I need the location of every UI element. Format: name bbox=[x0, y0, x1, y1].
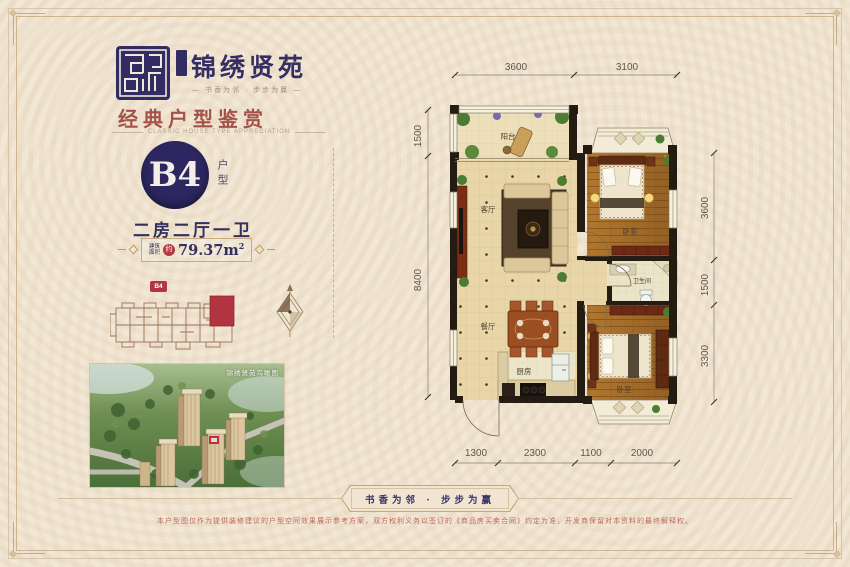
footer-disclaimer: 本户型图仅作为提供装修建议的户型空间效果展示参考方案，双方权利义务以签订的《商品… bbox=[0, 516, 850, 526]
footer-ribbon: 书香为邻 · 步步为赢 bbox=[341, 485, 519, 512]
dim-left-1: 1500 bbox=[413, 124, 424, 147]
floorplan-drawing: 阳台 客厅 卧室 卫生间 餐厅 厨房 卧室 3600 3100 1500 840… bbox=[402, 40, 774, 476]
room-label-bedroom2: 卧室 bbox=[617, 384, 632, 394]
area-value: 79.37m2 bbox=[178, 241, 244, 259]
unit-code: B4 bbox=[149, 155, 201, 195]
dim-top-2: 3100 bbox=[616, 62, 639, 73]
footer-slogan: 书香为邻 · 步步为赢 bbox=[365, 492, 495, 506]
corner-ornament bbox=[805, 13, 837, 45]
corner-ornament bbox=[13, 13, 45, 45]
area-box: 建筑面积 约 79.37m2 bbox=[141, 238, 252, 262]
room-label-kitchen: 厨房 bbox=[517, 366, 532, 376]
room-label-living: 客厅 bbox=[481, 204, 496, 214]
dining-set bbox=[508, 301, 558, 357]
section-title: 经典户型鉴赏 bbox=[118, 103, 268, 132]
dim-right-3: 3300 bbox=[700, 344, 711, 367]
room-label-bedroom1: 卧室 bbox=[623, 226, 638, 236]
brand-tagline: — 书香为邻 · 步步为赢 — bbox=[192, 85, 302, 95]
unit-badge: B4 bbox=[141, 141, 209, 209]
poster-canvas: 锦绣贤苑 — 书香为邻 · 步步为赢 — 经典户型鉴赏 CLASSIC HOUS… bbox=[0, 0, 850, 567]
section-subtitle: CLASSIC HOUSE TYPE APPRECIATION bbox=[148, 129, 290, 135]
aerial-view-image: 锦绣贤苑鸟瞰图 bbox=[89, 363, 285, 488]
brand-seal-icon bbox=[116, 46, 170, 100]
dim-bottom-3: 1100 bbox=[580, 448, 602, 459]
locator-unit-tag: B4 bbox=[150, 281, 167, 292]
footer-ribbon-inner: 书香为邻 · 步步为赢 bbox=[351, 488, 509, 509]
dim-bottom-4: 2000 bbox=[631, 448, 654, 459]
corner-ornament bbox=[805, 522, 837, 554]
compass-icon bbox=[269, 283, 311, 341]
building-locator-plan bbox=[110, 292, 262, 356]
subtitle-line-left bbox=[112, 132, 143, 133]
dim-top-1: 3600 bbox=[505, 62, 528, 73]
dim-right-1: 3600 bbox=[700, 196, 711, 219]
brand-name: 锦绣贤苑 bbox=[191, 48, 307, 84]
aerial-view-graphic bbox=[90, 364, 284, 487]
area-label: 建筑面积 bbox=[149, 244, 160, 256]
area-dash-right bbox=[267, 249, 275, 250]
corner-ornament bbox=[13, 522, 45, 554]
dim-left-2: 8400 bbox=[413, 268, 424, 291]
room-label-dining: 餐厅 bbox=[481, 322, 496, 331]
dim-right-2: 1500 bbox=[700, 273, 711, 296]
unit-code-label: 户型 bbox=[214, 159, 230, 189]
area-dash-left bbox=[118, 249, 126, 250]
dim-bottom-2: 2300 bbox=[524, 448, 547, 459]
logo-side-tag bbox=[176, 50, 187, 76]
subtitle-line-right bbox=[295, 132, 326, 133]
aerial-caption: 锦绣贤苑鸟瞰图 bbox=[227, 367, 280, 377]
room-label-bath: 卫生间 bbox=[633, 277, 651, 285]
area-diamond-right bbox=[255, 245, 265, 255]
dim-bottom-1: 1300 bbox=[465, 448, 488, 459]
locator-highlight-unit bbox=[210, 296, 234, 326]
area-row: 建筑面积 约 79.37m2 bbox=[118, 238, 275, 262]
column-divider bbox=[333, 148, 334, 338]
room-label-balcony: 阳台 bbox=[501, 131, 516, 141]
area-approx-badge: 约 bbox=[163, 244, 175, 256]
area-diamond-left bbox=[129, 245, 139, 255]
